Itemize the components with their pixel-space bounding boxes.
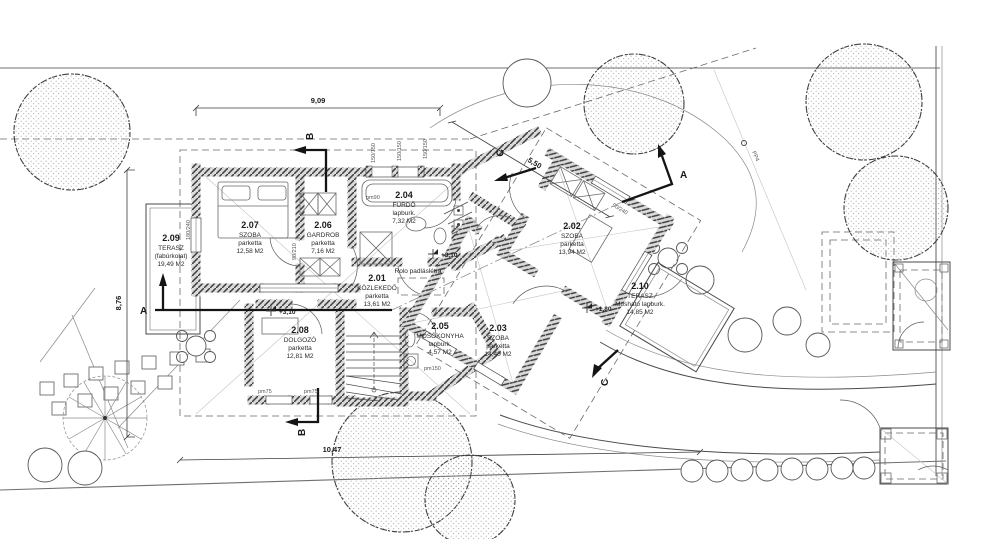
- svg-text:SZOBA: SZOBA: [561, 233, 584, 240]
- tree-symbol: [503, 59, 551, 107]
- dim-left-label: 8,76: [114, 296, 123, 311]
- opening-dim: 150/150: [397, 141, 403, 161]
- svg-text:parketta: parketta: [365, 293, 389, 300]
- opening-dim: 180/240: [186, 220, 192, 240]
- svg-text:7,16 M2: 7,16 M2: [311, 248, 335, 255]
- svg-text:7,32 M2: 7,32 M2: [392, 218, 416, 225]
- svg-text:19,49 M2: 19,49 M2: [157, 261, 184, 268]
- building-left-wing: [146, 132, 536, 416]
- svg-text:SZOBA: SZOBA: [487, 335, 510, 342]
- svg-text:13,61 M2: 13,61 M2: [363, 301, 390, 308]
- dim-top: 9,09: [193, 96, 443, 116]
- svg-text:2.05: 2.05: [431, 321, 449, 331]
- svg-text:lapburk.: lapburk.: [392, 210, 415, 217]
- garden-shed: [893, 262, 950, 350]
- opening-dim: 150/150: [371, 143, 377, 163]
- room-label-2-02: 2.02 SZOBA parketta 13,94 M2: [558, 221, 585, 256]
- opening-dim: 150/150: [423, 139, 429, 159]
- section-c-bottom: C: [592, 350, 618, 386]
- svg-text:2.06: 2.06: [314, 220, 332, 230]
- svg-text:parketta: parketta: [288, 345, 312, 352]
- dim-top-label: 9,09: [311, 96, 326, 105]
- section-a-label: A: [140, 306, 147, 317]
- svg-text:2.01: 2.01: [368, 273, 386, 283]
- floor-plan-screenshot: 9,09 5,50 8,76 10,47 B B: [0, 0, 991, 539]
- level-value: +3,10: [279, 309, 296, 316]
- attic-ladder-note: Rolo padláslétra: [395, 268, 442, 275]
- tree-symbol: [844, 156, 948, 260]
- svg-text:2.07: 2.07: [241, 220, 259, 230]
- bush-row: [681, 457, 875, 482]
- svg-text:4,57 M2: 4,57 M2: [428, 349, 452, 356]
- svg-text:2.08: 2.08: [291, 325, 309, 335]
- tree-symbol: [584, 54, 684, 154]
- section-b-label: B: [305, 133, 316, 140]
- tree-symbol: [806, 44, 922, 160]
- opening-dim: pm90: [366, 195, 380, 201]
- section-b-label: B: [297, 429, 308, 436]
- site-plan-canvas: 9,09 5,50 8,76 10,47 B B: [0, 0, 991, 539]
- section-a-left: A: [140, 273, 392, 317]
- svg-text:parketta: parketta: [311, 240, 335, 247]
- svg-text:2.03: 2.03: [489, 323, 507, 333]
- room-label-2-01: 2.01 KÖZLEKEDŐ parketta 13,61 M2: [357, 273, 397, 308]
- svg-text:2.09: 2.09: [162, 233, 180, 243]
- svg-text:14,85 M2: 14,85 M2: [626, 309, 653, 316]
- svg-text:KÖZLEKEDŐ: KÖZLEKEDŐ: [357, 283, 397, 292]
- svg-text:MOSÓKONYHA: MOSÓKONYHA: [416, 331, 464, 340]
- vegetation: [14, 44, 948, 539]
- svg-text:DOLGOZÓ: DOLGOZÓ: [284, 335, 317, 344]
- svg-text:2.02: 2.02: [563, 221, 581, 231]
- svg-text:(fabúrkolat): (fabúrkolat): [155, 253, 188, 260]
- tree-symbol: [425, 455, 515, 539]
- svg-text:12,58 M2: 12,58 M2: [236, 248, 263, 255]
- svg-text:FÜRDŐ: FÜRDŐ: [392, 200, 415, 209]
- svg-text:SZOBA: SZOBA: [239, 232, 262, 239]
- svg-text:2.04: 2.04: [395, 190, 413, 200]
- svg-text:parketta: parketta: [486, 343, 510, 350]
- section-c-label: C: [600, 379, 611, 386]
- svg-text:TERASZ: TERASZ: [627, 293, 653, 300]
- svg-text:lapburk.: lapburk.: [428, 341, 451, 348]
- opening-dim: pm75: [304, 389, 318, 395]
- tree-symbol: [14, 74, 130, 190]
- room-label-2-04: 2.04 FÜRDŐ lapburk. 7,32 M2: [392, 190, 416, 225]
- svg-text:12,81 M2: 12,81 M2: [286, 353, 313, 360]
- opening-dim: 90/240: [611, 203, 629, 217]
- svg-text:2.10: 2.10: [631, 281, 649, 291]
- room-labels: 2.01 KÖZLEKEDŐ parketta 13,61 M2 2.02 SZ…: [155, 190, 666, 360]
- svg-text:GARDROB: GARDROB: [307, 232, 340, 239]
- room-label-2-03: 2.03 SZOBA parketta 14,40 M2: [484, 323, 511, 358]
- room-label-2-08: 2.08 DOLGOZÓ parketta 12,81 M2: [284, 325, 317, 360]
- section-b-bottom: B: [285, 388, 318, 436]
- room-label-2-09: 2.09 TERASZ (fabúrkolat) 19,49 M2: [155, 233, 188, 268]
- toilet: [434, 228, 446, 244]
- annotations: Rolo padláslétra PP4 150/150 150/150 150…: [186, 139, 760, 395]
- section-a-label: A: [680, 170, 687, 181]
- opening-dim: pm75: [258, 389, 272, 395]
- svg-text:13,94 M2: 13,94 M2: [558, 249, 585, 256]
- site-boundaries: [0, 46, 946, 490]
- svg-text:parketta: parketta: [560, 241, 584, 248]
- level-value: +3,10: [441, 252, 458, 259]
- svg-text:Mosható lapburk.: Mosható lapburk.: [615, 301, 665, 308]
- opening-dim: pm150: [424, 366, 441, 372]
- level-value: +1,80: [595, 306, 612, 313]
- svg-text:parketta: parketta: [238, 240, 262, 247]
- svg-text:TERASZ: TERASZ: [158, 245, 184, 252]
- staircase: [346, 332, 402, 401]
- room-label-2-06: 2.06 GARDROB parketta 7,16 M2: [307, 220, 340, 255]
- svg-text:14,40 M2: 14,40 M2: [484, 351, 511, 358]
- opening-dim: 90/210: [292, 243, 298, 260]
- dim-bottom-label: 10,47: [323, 445, 342, 454]
